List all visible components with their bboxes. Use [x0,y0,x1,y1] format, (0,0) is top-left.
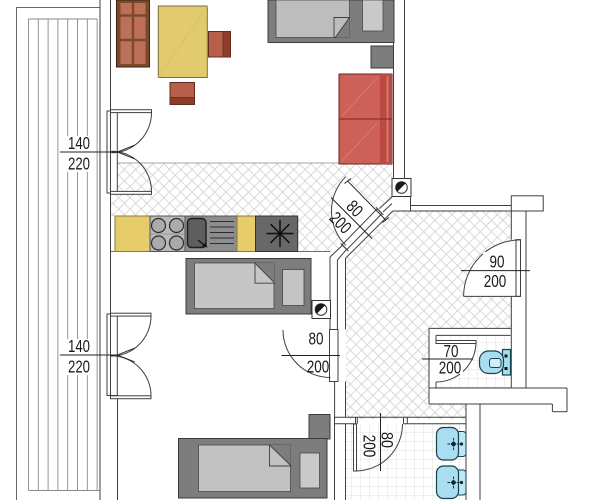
svg-text:200: 200 [360,435,380,458]
svg-text:90: 90 [490,252,505,272]
svg-text:220: 220 [68,154,90,174]
svg-text:140: 140 [68,133,90,153]
svg-text:220: 220 [68,357,90,377]
svg-text:200: 200 [307,357,330,377]
svg-text:80: 80 [309,329,324,349]
svg-text:140: 140 [68,336,90,356]
svg-text:200: 200 [484,271,507,291]
svg-text:200: 200 [439,358,462,378]
